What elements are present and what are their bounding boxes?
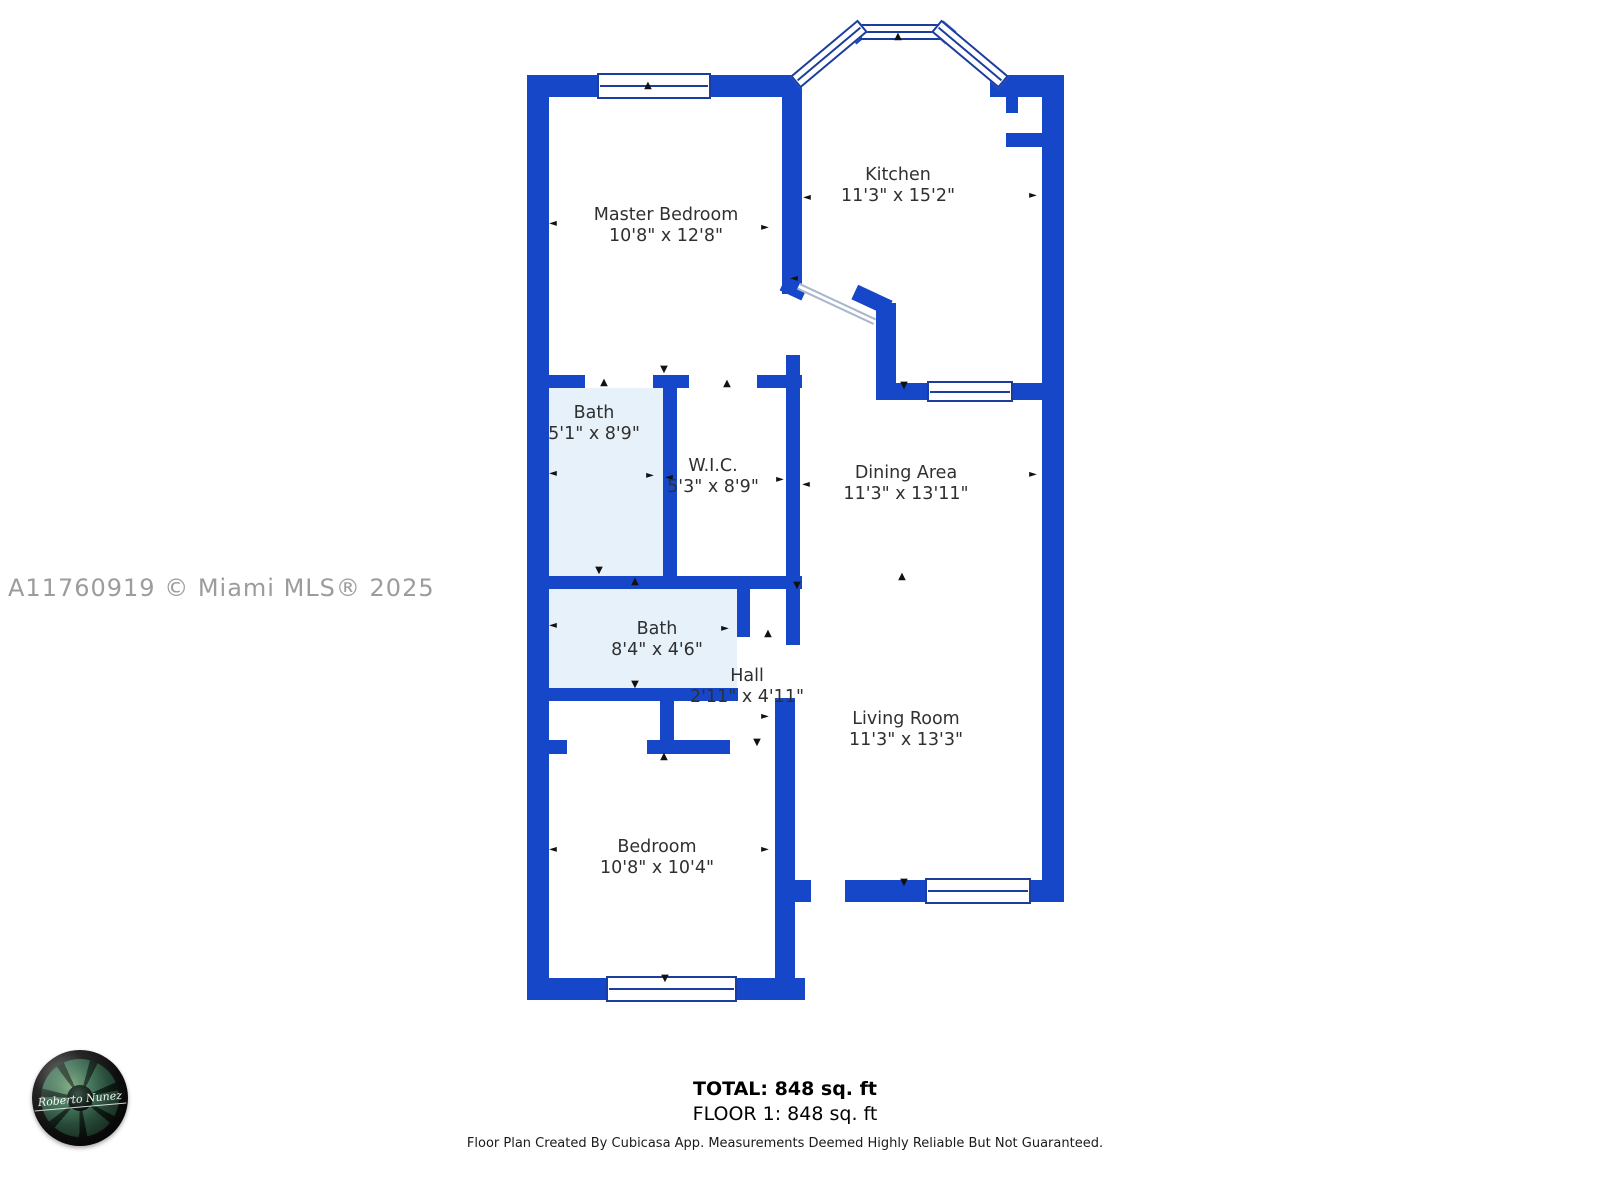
direction-marker: ▲: [764, 629, 772, 639]
mls-watermark: A11760919 © Miami MLS® 2025: [8, 574, 435, 602]
direction-marker: ►: [1029, 191, 1037, 201]
disclaimer-text: Floor Plan Created By Cubicasa App. Meas…: [467, 1136, 1103, 1151]
direction-marker: ◄: [549, 469, 557, 479]
direction-marker: ▼: [661, 974, 669, 984]
room-name: W.I.C.: [667, 456, 759, 477]
wall-exterior-left: [527, 75, 549, 1000]
direction-marker: ►: [761, 223, 769, 233]
direction-marker: ▼: [793, 581, 801, 591]
direction-marker: ◄: [549, 621, 557, 631]
wall-niche: [1006, 133, 1042, 147]
room-label-bedroom: Bedroom 10'8" x 10'4": [600, 837, 714, 879]
room-name: Living Room: [849, 709, 963, 730]
wall-master-kitchen-divider: [782, 75, 802, 294]
room-dims: 10'8" x 12'8": [594, 226, 738, 247]
room-name: Bath: [548, 403, 640, 424]
direction-marker: ▼: [660, 365, 668, 375]
room-name: Master Bedroom: [594, 205, 738, 226]
room-dims: 2'11" x 4'11": [690, 687, 804, 708]
window-symbol-bay-left: [790, 20, 868, 89]
room-name: Bath: [611, 619, 703, 640]
direction-marker: ◄: [802, 480, 810, 490]
wall-exterior-right: [1042, 75, 1064, 902]
window-symbol-bay-right: [931, 20, 1009, 89]
direction-marker: ►: [1029, 470, 1037, 480]
direction-marker: ◄: [803, 193, 811, 203]
wall-bath2-right: [737, 589, 750, 637]
window-symbol: [925, 878, 1031, 904]
wall-niche-stub: [1006, 97, 1018, 113]
direction-marker: ▼: [900, 878, 908, 888]
window-symbol: [606, 976, 737, 1002]
direction-marker: ▼: [631, 680, 639, 690]
direction-marker: ►: [761, 712, 769, 722]
room-dims: 10'8" x 10'4": [600, 858, 714, 879]
direction-marker: ▲: [894, 32, 902, 42]
room-label-living-room: Living Room 11'3" x 13'3": [849, 709, 963, 751]
room-label-dining-area: Dining Area 11'3" x 13'11": [843, 463, 968, 505]
room-name: Kitchen: [841, 165, 955, 186]
room-dims: 5'1" x 8'9": [548, 424, 640, 445]
room-name: Dining Area: [843, 463, 968, 484]
direction-marker: ◄: [790, 274, 798, 284]
room-dims: 8'4" x 4'6": [611, 640, 703, 661]
room-label-wic: W.I.C. 5'3" x 8'9": [667, 456, 759, 498]
room-dims: 11'3" x 13'3": [849, 730, 963, 751]
room-label-hall: Hall 2'11" x 4'11": [690, 666, 804, 708]
room-name: Bedroom: [600, 837, 714, 858]
wall-master-bottom: [527, 375, 585, 388]
direction-marker: ▼: [753, 738, 761, 748]
direction-marker: ◄: [549, 219, 557, 229]
direction-marker: ◄: [549, 845, 557, 855]
direction-marker: ▲: [723, 379, 731, 389]
direction-marker: ►: [646, 471, 654, 481]
room-label-master-bedroom: Master Bedroom 10'8" x 12'8": [594, 205, 738, 247]
direction-marker: ▼: [595, 566, 603, 576]
room-label-bath-1: Bath 5'1" x 8'9": [548, 403, 640, 445]
direction-marker: ▲: [644, 81, 652, 91]
floor-plan-canvas: ▲ ▲ ◄ ► ◄ ► ◄ ▼ ▲ ▼ ▲ ◄ ► ◄ ► ◄ ► ▼ ▲ ▼ …: [0, 0, 1600, 1200]
room-dims: 5'3" x 8'9": [667, 477, 759, 498]
room-name: Hall: [690, 666, 804, 687]
window-symbol: [927, 381, 1013, 402]
wall-bedroom-right: [775, 698, 795, 1000]
floor-area-text: FLOOR 1: 848 sq. ft: [693, 1103, 878, 1125]
direction-marker: ▲: [898, 572, 906, 582]
direction-marker: ►: [776, 475, 784, 485]
direction-marker: ►: [761, 845, 769, 855]
direction-marker: ▲: [631, 577, 639, 587]
direction-marker: ►: [721, 624, 729, 634]
window-symbol: [597, 73, 711, 99]
room-dims: 11'3" x 15'2": [841, 186, 955, 207]
wall-wic-dining-divider: [786, 355, 800, 645]
room-label-kitchen: Kitchen 11'3" x 15'2": [841, 165, 955, 207]
direction-marker: ▲: [600, 378, 608, 388]
wall-stub-living: [795, 880, 811, 902]
total-area-text: TOTAL: 848 sq. ft: [693, 1078, 877, 1100]
room-dims: 11'3" x 13'11": [843, 484, 968, 505]
room-label-bath-2: Bath 8'4" x 4'6": [611, 619, 703, 661]
direction-marker: ▲: [660, 752, 668, 762]
wall-stub-left: [549, 740, 567, 754]
wall-bathrow-bottom: [549, 576, 802, 589]
photographer-logo: Roberto Nunez: [32, 1050, 128, 1146]
direction-marker: ▼: [900, 381, 908, 391]
